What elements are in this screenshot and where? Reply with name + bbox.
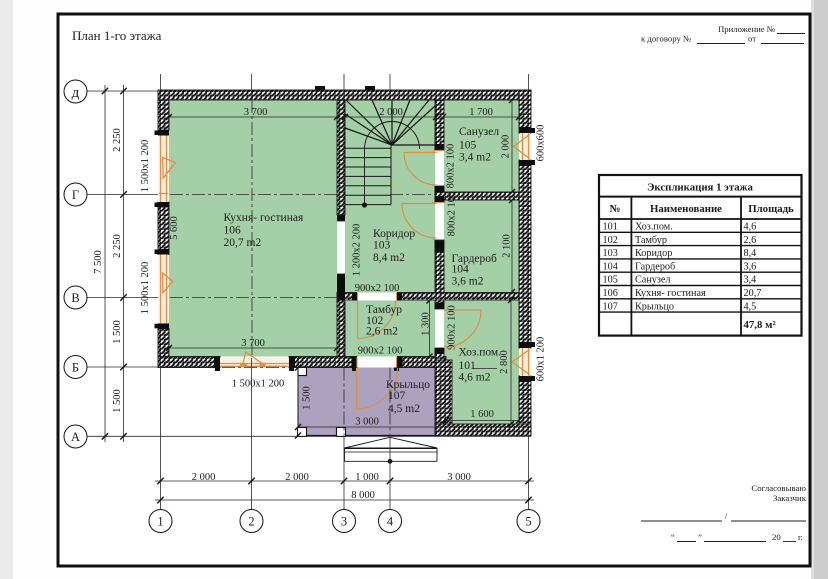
svg-text:Согласовываю: Согласовываю xyxy=(751,483,806,493)
svg-text:3: 3 xyxy=(341,515,347,529)
svg-text:3 700: 3 700 xyxy=(244,107,268,118)
svg-text:д: д xyxy=(72,85,80,101)
svg-text:Площадь: Площадь xyxy=(748,203,794,215)
svg-text:Г: Г xyxy=(72,188,79,202)
svg-text:1 500x1 200: 1 500x1 200 xyxy=(140,262,151,315)
svg-text:4,5 m2: 4,5 m2 xyxy=(388,403,420,415)
svg-text:2 000: 2 000 xyxy=(285,472,309,483)
svg-text:Кухня- гостиная: Кухня- гостиная xyxy=(224,212,304,224)
svg-text:Б: Б xyxy=(72,361,79,375)
svg-text:1 500: 1 500 xyxy=(302,386,313,410)
svg-text:3,4: 3,4 xyxy=(744,275,757,286)
svg-text:106: 106 xyxy=(603,288,618,299)
svg-text:“: “ xyxy=(671,532,675,542)
svg-text:Заказчик: Заказчик xyxy=(773,493,807,503)
svg-text:2 250: 2 250 xyxy=(112,234,123,258)
svg-text:101: 101 xyxy=(603,222,618,233)
svg-text:20,7: 20,7 xyxy=(744,288,762,299)
svg-text:2 000: 2 000 xyxy=(379,107,403,118)
svg-text:Коридор: Коридор xyxy=(373,228,415,240)
svg-text:№: № xyxy=(610,203,621,215)
svg-text:900x2 100: 900x2 100 xyxy=(355,283,400,294)
svg-text:900x2 100: 900x2 100 xyxy=(358,346,403,357)
svg-text:2,6 m2: 2,6 m2 xyxy=(366,326,398,338)
svg-text:1 000: 1 000 xyxy=(355,472,379,483)
svg-text:Крыльцо: Крыльцо xyxy=(635,301,674,312)
svg-text:101: 101 xyxy=(459,360,477,372)
svg-text:Тамбур: Тамбур xyxy=(635,235,667,246)
svg-text:3,4 m2: 3,4 m2 xyxy=(459,152,491,164)
svg-text:102: 102 xyxy=(603,235,618,246)
svg-text:План 1-го этажа: План 1-го этажа xyxy=(72,28,162,43)
svg-text:600x1 200: 600x1 200 xyxy=(536,337,547,382)
svg-text:3 000: 3 000 xyxy=(355,417,379,428)
svg-text:104: 104 xyxy=(452,264,470,276)
svg-text:1: 1 xyxy=(157,515,163,529)
svg-text:Экспликация 1 этажа: Экспликация 1 этажа xyxy=(647,182,753,194)
svg-text:20,7 m2: 20,7 m2 xyxy=(224,237,262,249)
svg-text:Хоз.пом.: Хоз.пом. xyxy=(459,347,502,359)
svg-text:3,6 m2: 3,6 m2 xyxy=(452,276,484,288)
svg-text:2 000: 2 000 xyxy=(192,472,216,483)
svg-text:2,6: 2,6 xyxy=(744,235,757,246)
svg-text:от: от xyxy=(748,34,756,44)
svg-text:1 500: 1 500 xyxy=(112,320,123,344)
svg-text:1 500x1 200: 1 500x1 200 xyxy=(232,379,285,390)
svg-text:1 300: 1 300 xyxy=(421,312,432,336)
svg-text:105: 105 xyxy=(459,140,477,152)
svg-text:800x2 100: 800x2 100 xyxy=(446,144,457,189)
svg-text:Коридор: Коридор xyxy=(635,248,672,259)
svg-text:4,6 m2: 4,6 m2 xyxy=(459,372,491,384)
svg-text:600x600: 600x600 xyxy=(536,125,547,162)
svg-text:107: 107 xyxy=(603,301,618,312)
svg-text:2: 2 xyxy=(248,515,254,529)
svg-text:4,6: 4,6 xyxy=(744,222,757,233)
svg-text:5: 5 xyxy=(525,515,531,529)
svg-text:к договору №: к договору № xyxy=(641,34,691,44)
svg-text:8,4 m2: 8,4 m2 xyxy=(373,252,405,264)
svg-text:3 000: 3 000 xyxy=(447,472,471,483)
svg-text:2 250: 2 250 xyxy=(112,128,123,152)
svg-text:8 000: 8 000 xyxy=(351,490,375,501)
svg-text:8,4: 8,4 xyxy=(744,248,757,259)
svg-text:Санузел: Санузел xyxy=(635,275,671,286)
svg-text:А: А xyxy=(71,430,80,444)
svg-text:Санузел: Санузел xyxy=(459,126,499,138)
svg-text:3 700: 3 700 xyxy=(241,338,265,349)
svg-text:106: 106 xyxy=(224,225,242,237)
svg-text:1 500x1 200: 1 500x1 200 xyxy=(140,140,151,193)
svg-text:1 200x2 200: 1 200x2 200 xyxy=(352,224,363,277)
svg-text:5 600: 5 600 xyxy=(169,216,180,240)
svg-text:103: 103 xyxy=(603,248,618,259)
svg-text:3,6: 3,6 xyxy=(744,261,757,272)
svg-text:1 500: 1 500 xyxy=(112,389,123,413)
svg-text:Наименование: Наименование xyxy=(650,203,722,215)
svg-text:В: В xyxy=(71,291,79,305)
svg-text:47,8 м²: 47,8 м² xyxy=(744,319,776,331)
svg-text:Кухня- гостиная: Кухня- гостиная xyxy=(635,288,706,299)
svg-text:900x2 100: 900x2 100 xyxy=(447,305,458,350)
svg-text:7 500: 7 500 xyxy=(93,250,104,274)
svg-text:104: 104 xyxy=(603,261,618,272)
svg-text:1 600: 1 600 xyxy=(470,409,494,420)
svg-text:107: 107 xyxy=(388,390,406,402)
svg-text:Приложение №: Приложение № xyxy=(718,24,775,34)
svg-text:103: 103 xyxy=(373,240,391,252)
svg-text:2 000: 2 000 xyxy=(501,135,512,159)
svg-text:г.: г. xyxy=(798,532,803,542)
svg-text:4: 4 xyxy=(387,515,394,529)
svg-text:Хоз.пом.: Хоз.пом. xyxy=(635,222,673,233)
svg-text:105: 105 xyxy=(603,275,618,286)
svg-text:4,5: 4,5 xyxy=(744,301,757,312)
svg-text:800x2 100: 800x2 100 xyxy=(447,192,458,237)
svg-text:”: ” xyxy=(698,532,702,542)
svg-text:20: 20 xyxy=(772,532,781,542)
svg-text:2 100: 2 100 xyxy=(502,234,513,258)
svg-text:Гардероб: Гардероб xyxy=(635,261,675,272)
svg-text:1 700: 1 700 xyxy=(469,107,493,118)
